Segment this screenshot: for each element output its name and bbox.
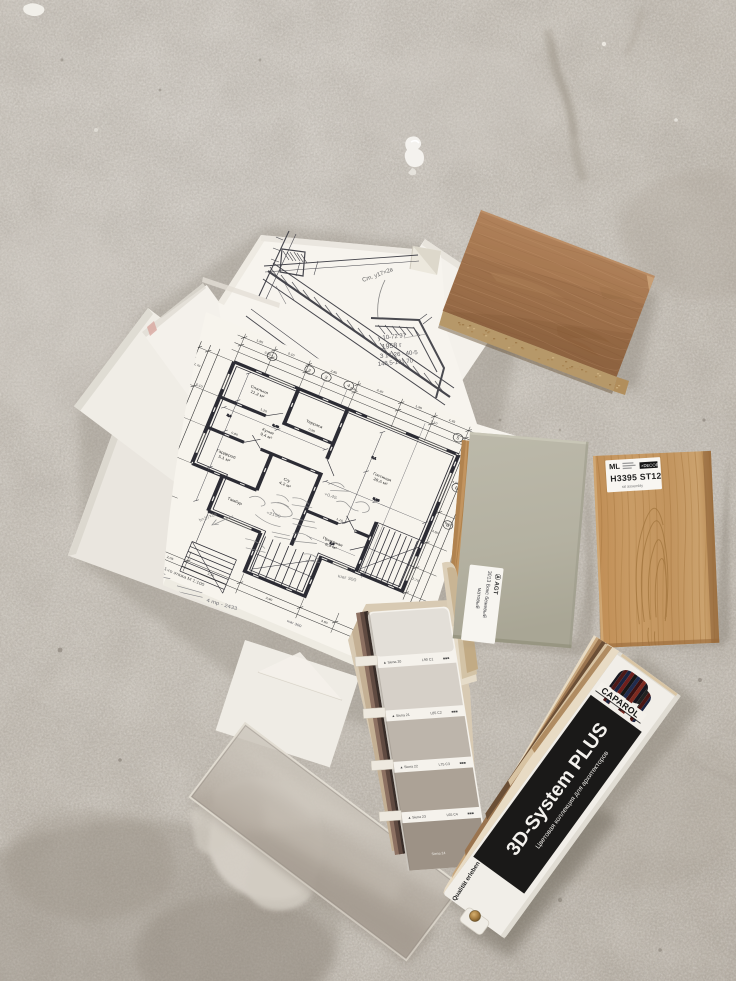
- svg-text:■■■: ■■■: [467, 811, 474, 815]
- svg-text:■■■: ■■■: [443, 656, 450, 660]
- svg-text:ML: ML: [609, 462, 621, 472]
- svg-text:L90 C1: L90 C1: [422, 657, 434, 662]
- svg-text:L75 C3: L75 C3: [438, 762, 450, 767]
- svg-text:L65 C4: L65 C4: [446, 812, 458, 817]
- svg-text:■■■: ■■■: [451, 710, 458, 714]
- svg-text:×DECOR: ×DECOR: [641, 462, 659, 468]
- svg-text:L85 C2: L85 C2: [430, 711, 442, 716]
- svg-text:■■■: ■■■: [459, 761, 466, 765]
